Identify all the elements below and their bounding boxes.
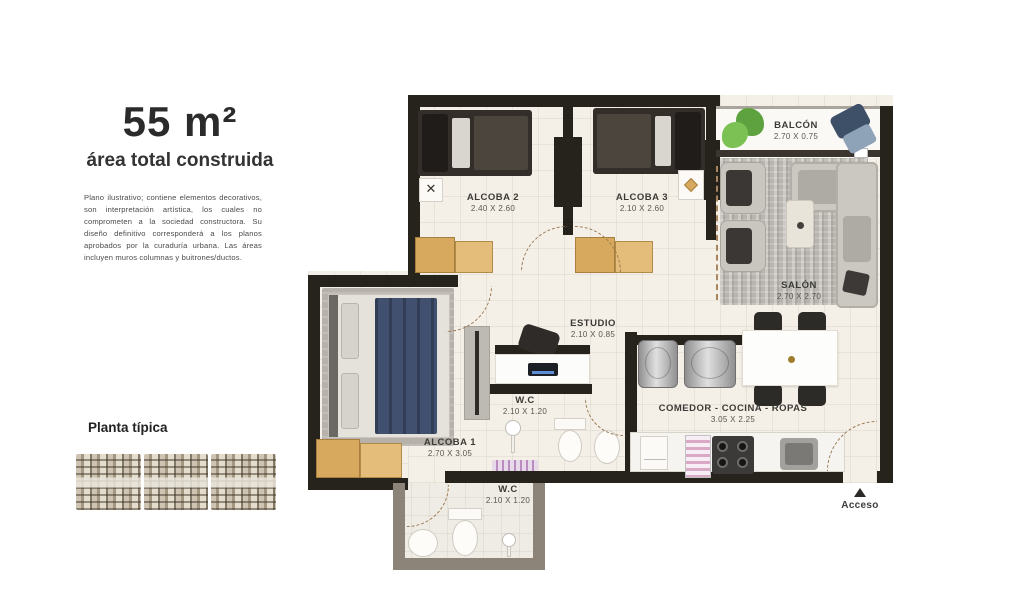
stove	[712, 436, 754, 474]
door-arc	[407, 485, 449, 527]
balcony-divider	[868, 150, 880, 157]
duvet	[375, 298, 437, 434]
room-dims: 2.70 X 0.75	[741, 132, 851, 141]
wall-bathroom	[393, 483, 405, 570]
shower-head	[505, 420, 521, 436]
fridge	[640, 436, 668, 470]
room-label-alcoba1: ALCOBA 1 2.70 X 3.05	[395, 437, 505, 458]
burner	[737, 457, 748, 468]
room-dims: 2.10 X 2.60	[587, 204, 697, 213]
thumbnail-block	[76, 454, 141, 510]
door-arc	[585, 398, 623, 436]
bed-pillow	[341, 373, 359, 429]
wall-bathroom	[393, 558, 545, 570]
typical-floor-label: Planta típica	[88, 420, 168, 435]
bed-sheet	[452, 118, 470, 168]
decor-item	[684, 178, 698, 192]
room-dims: 2.10 X 0.85	[538, 330, 648, 339]
door-arc	[521, 226, 567, 272]
wall	[308, 275, 458, 287]
tv-panel	[554, 137, 582, 207]
room-dims: 2.70 X 2.70	[744, 292, 854, 301]
room-label-salon: SALÓN 2.70 X 2.70	[744, 280, 854, 301]
coffee-table	[786, 200, 814, 248]
thumbnail-block	[211, 454, 276, 510]
bed-pillow	[675, 112, 701, 170]
laptop	[528, 363, 558, 376]
burner	[717, 441, 728, 452]
room-label-wc-2: W.C 2.10 X 1.20	[453, 484, 563, 505]
decor-item	[788, 356, 795, 363]
wall-right	[880, 106, 893, 482]
disclaimer-text: Plano ilustrativo; contiene elementos de…	[84, 192, 262, 265]
room-name: BALCÓN	[741, 120, 851, 131]
fridge-line	[644, 459, 666, 460]
room-name: ALCOBA 1	[395, 437, 505, 448]
washing-machine	[638, 340, 678, 388]
wardrobe	[316, 439, 360, 478]
bed-mattress	[597, 114, 651, 168]
cushion	[726, 170, 752, 206]
bath-mat	[492, 460, 538, 471]
dining-table	[742, 330, 838, 386]
room-name: W.C	[470, 395, 580, 406]
laptop-screen	[532, 371, 554, 374]
entrance-door-arc	[827, 421, 877, 471]
room-name: ALCOBA 2	[438, 192, 548, 203]
room-label-comedor: COMEDOR - COCINA - ROPAS 3.05 X 2.25	[653, 403, 813, 424]
room-label-balcon: BALCÓN 2.70 X 0.75	[741, 120, 851, 141]
armchair	[720, 162, 766, 214]
room-label-estudio: ESTUDIO 2.10 X 0.85	[538, 318, 648, 339]
bed	[593, 108, 705, 174]
room-name: COMEDOR - COCINA - ROPAS	[653, 403, 813, 414]
washer-drum	[645, 347, 671, 379]
headboard	[329, 295, 338, 437]
bed	[328, 294, 450, 438]
round-sink	[408, 529, 438, 557]
room-dims: 2.70 X 3.05	[395, 449, 505, 458]
room-dims: 2.40 X 2.60	[438, 204, 548, 213]
shower-head	[502, 533, 516, 547]
room-dims: 2.10 X 1.20	[453, 496, 563, 505]
kitchen-sink	[780, 438, 818, 470]
room-name: SALÓN	[744, 280, 854, 291]
bed-pillow	[341, 303, 359, 359]
thumbnail-block	[144, 454, 209, 510]
bed-mattress	[474, 116, 528, 170]
toilet-bowl	[558, 430, 582, 462]
decor-item	[797, 222, 804, 229]
room-dims: 2.10 X 1.20	[470, 407, 580, 416]
room-name: ESTUDIO	[538, 318, 648, 329]
room-label-alcoba2: ALCOBA 2 2.40 X 2.60	[438, 192, 548, 213]
access-label: Acceso	[820, 488, 900, 511]
room-dims: 3.05 X 2.25	[653, 415, 813, 424]
shower-arm	[507, 546, 511, 557]
floor-plan: ALCOBA 2 2.40 X 2.60 ALCOBA 3 2.10 X 2.6…	[308, 92, 900, 574]
wardrobe	[455, 241, 493, 273]
room-name: W.C	[453, 484, 563, 495]
armchair	[720, 220, 766, 272]
sofa-cushion	[843, 216, 871, 262]
access-arrow-icon	[854, 488, 866, 497]
door-arc	[575, 226, 621, 272]
toilet-bowl	[452, 520, 478, 556]
access-text: Acceso	[820, 500, 900, 511]
room-label-alcoba3: ALCOBA 3 2.10 X 2.60	[587, 192, 697, 213]
salon-edge-dashes	[716, 166, 718, 300]
washer-drum	[691, 347, 729, 379]
bed-sheet	[655, 116, 671, 166]
wall	[485, 384, 592, 394]
wall-bottom	[877, 471, 893, 483]
area-subtitle: área total construida	[62, 150, 298, 172]
wardrobe	[415, 237, 455, 273]
burner	[717, 457, 728, 468]
room-name: ALCOBA 3	[587, 192, 697, 203]
bed	[418, 110, 532, 176]
burner	[737, 441, 748, 452]
desk	[495, 354, 590, 384]
pantry-cabinet	[685, 435, 711, 478]
room-label-wc-1: W.C 2.10 X 1.20	[470, 395, 580, 416]
bed-pillow	[422, 114, 448, 172]
sink-basin	[785, 443, 813, 465]
cushion	[726, 228, 752, 264]
door-arc	[446, 286, 492, 332]
washing-machine	[684, 340, 736, 388]
shower-arm	[511, 435, 515, 453]
area-title: 55 m²	[78, 98, 282, 146]
wall-bottom	[445, 471, 843, 483]
toilet-tank	[554, 418, 586, 430]
toilet-tank	[448, 508, 482, 520]
typical-floor-thumbnail	[76, 450, 276, 514]
